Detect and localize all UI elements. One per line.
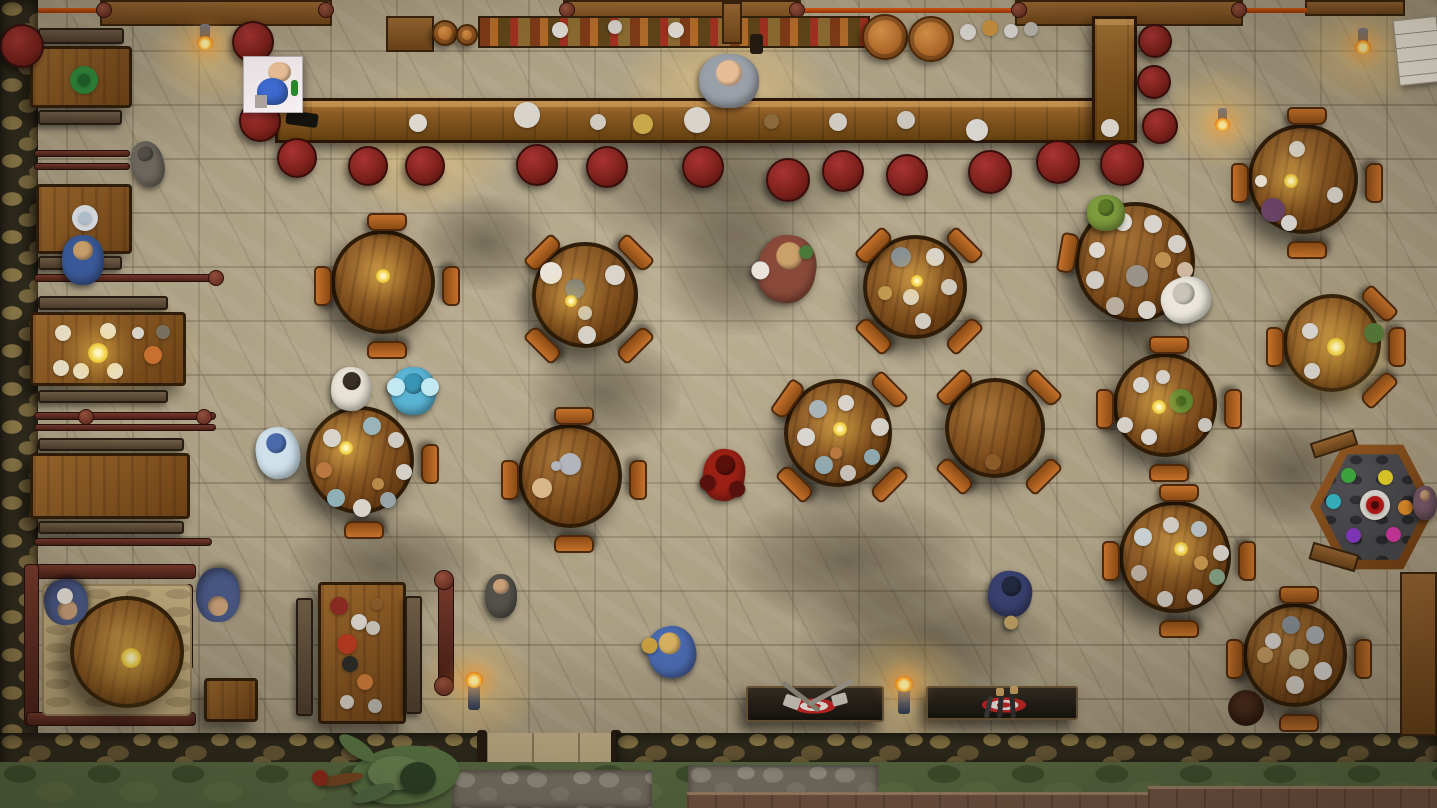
counter-plate	[1101, 119, 1119, 137]
counter-mug	[764, 114, 779, 129]
mug	[878, 286, 892, 300]
chair	[1238, 541, 1256, 581]
plate	[1141, 429, 1157, 445]
plate	[1191, 521, 1207, 537]
chair	[1365, 163, 1383, 203]
wall-lamp	[1218, 104, 1227, 124]
barkeep-token[interactable]	[696, 50, 762, 112]
beer-bottle	[291, 80, 298, 96]
plate	[1134, 528, 1152, 546]
chair	[1159, 484, 1199, 502]
chair	[1102, 541, 1120, 581]
chair	[314, 266, 332, 306]
plate	[1086, 271, 1104, 289]
booth-table-3	[30, 312, 186, 386]
gaming-chip-teal[interactable]	[1326, 494, 1341, 509]
chair	[367, 213, 407, 231]
bar-stool	[1138, 24, 1172, 58]
round-table-c	[306, 406, 414, 514]
corner-bench-rail	[24, 564, 39, 726]
plate	[380, 492, 396, 508]
bread	[100, 323, 116, 339]
serving-table-bench	[296, 598, 313, 716]
candle	[1152, 400, 1166, 414]
token-head	[493, 579, 508, 594]
booth-bench	[38, 296, 168, 310]
chair	[1266, 327, 1284, 367]
plate	[368, 699, 382, 713]
booth-rail	[34, 424, 216, 431]
chair	[1279, 714, 1319, 732]
candle	[1284, 174, 1298, 188]
token-head	[73, 241, 92, 260]
wall-lamp	[200, 20, 210, 42]
torch-flame	[1215, 118, 1230, 131]
green-plate-center	[78, 74, 90, 86]
plate	[1314, 662, 1332, 680]
chair	[1287, 241, 1327, 259]
plate	[871, 418, 889, 436]
bar-stool	[348, 146, 388, 186]
kettle	[1282, 616, 1300, 634]
bar-bowl	[982, 20, 998, 36]
patron-white-shirt-token[interactable]	[327, 362, 375, 416]
bar-stool	[682, 146, 724, 188]
plate	[1327, 187, 1343, 203]
bread	[1155, 252, 1171, 268]
counter-mug	[590, 114, 606, 130]
round-table-l	[1283, 294, 1381, 392]
candle	[565, 295, 577, 307]
wall-pipe	[800, 8, 1018, 13]
roast-dish	[144, 346, 162, 364]
plate	[1304, 363, 1320, 379]
shelf-plate	[608, 20, 622, 34]
plate	[1156, 370, 1170, 384]
plate	[840, 465, 856, 481]
plate	[1168, 235, 1186, 253]
wall-lamp	[1358, 24, 1368, 48]
plate	[363, 417, 381, 435]
plate	[864, 449, 880, 465]
thrown-blade	[1010, 686, 1018, 694]
round-table-d	[518, 424, 622, 528]
wall-torch	[898, 682, 910, 714]
bar-plate	[960, 24, 976, 40]
plate	[1302, 323, 1318, 339]
plate	[915, 313, 931, 329]
token-head	[403, 373, 424, 394]
bar-stool	[516, 144, 558, 186]
token-head	[208, 596, 228, 616]
plate	[323, 429, 341, 447]
booth-bench	[38, 110, 122, 125]
chair	[1159, 620, 1199, 638]
green-dish	[1364, 323, 1384, 343]
chair	[1388, 327, 1406, 367]
chair	[1149, 336, 1189, 354]
chair	[501, 460, 519, 500]
tavern-map	[0, 0, 1437, 808]
plate	[396, 464, 412, 480]
candle	[339, 441, 353, 455]
bar-plate	[1024, 22, 1038, 36]
candle	[833, 422, 847, 436]
plate	[1089, 242, 1105, 258]
kettle	[891, 247, 911, 267]
bar-stool	[0, 24, 44, 68]
green-plate-center	[1176, 396, 1186, 406]
bar-crate	[386, 16, 434, 52]
bar-stool	[822, 150, 864, 192]
serving-table-bench	[405, 596, 422, 714]
mug	[985, 454, 1001, 470]
candle	[911, 275, 923, 287]
chair	[1354, 639, 1372, 679]
top-wall-panel	[100, 0, 332, 26]
booth-bench	[38, 521, 184, 534]
red-eye-pupil	[1371, 501, 1379, 509]
ale-barrel	[862, 14, 908, 60]
gaming-chip-orange[interactable]	[1398, 500, 1413, 515]
wing	[387, 378, 405, 396]
chair	[367, 341, 407, 359]
torch-flame	[465, 672, 483, 688]
chair	[1149, 464, 1189, 482]
bowl	[156, 325, 170, 339]
plate	[340, 695, 354, 709]
plate	[1286, 676, 1304, 694]
troll-head-hair	[400, 762, 436, 794]
booth-rail	[34, 163, 130, 170]
mug	[1198, 418, 1212, 432]
troll-club-head	[312, 770, 328, 786]
wall-knob	[96, 2, 112, 18]
mug	[371, 598, 383, 610]
plate	[1106, 297, 1124, 315]
serving-woman-token[interactable]	[749, 225, 826, 313]
platter	[1126, 265, 1148, 287]
chair	[554, 535, 594, 553]
patron-darkblue-token[interactable]	[982, 564, 1038, 624]
round-table-a	[331, 230, 435, 334]
counter-plate	[409, 114, 427, 132]
ale-barrel	[908, 16, 954, 62]
corner-stander-token[interactable]	[194, 564, 242, 626]
round-table-h	[945, 378, 1045, 478]
glowing-candle	[121, 648, 141, 668]
booth-table-4	[30, 453, 190, 519]
side-stool-table	[204, 678, 258, 722]
rail-knob	[434, 676, 454, 696]
bar-stool	[1100, 142, 1144, 186]
bread	[53, 360, 69, 376]
plate	[1187, 589, 1203, 605]
wall-knob	[1231, 2, 1247, 18]
shelf-plate	[668, 22, 684, 38]
wall-pipe	[1243, 8, 1307, 13]
clay-jug	[432, 20, 458, 46]
chair	[421, 444, 439, 484]
corner-sitter-token[interactable]	[38, 572, 94, 632]
token-head	[716, 60, 742, 86]
plate	[388, 432, 404, 448]
rail-knob	[196, 409, 212, 425]
booth-bench	[38, 438, 184, 451]
plate	[903, 289, 919, 305]
chair	[1287, 107, 1327, 125]
gaming-chip-green[interactable]	[1341, 468, 1356, 483]
plate	[327, 489, 345, 507]
plate	[351, 614, 367, 630]
divider-rail	[438, 576, 454, 686]
candlestick	[1255, 175, 1267, 187]
plate	[797, 428, 815, 446]
mug	[1289, 141, 1305, 157]
plate	[1281, 215, 1297, 231]
booth-rail	[34, 412, 216, 420]
bread	[73, 363, 89, 379]
rail-knob	[78, 409, 94, 425]
bread	[55, 325, 71, 341]
plate	[1138, 301, 1156, 319]
wall-knob	[318, 2, 334, 18]
chair	[1096, 389, 1114, 429]
plate	[1117, 417, 1133, 433]
round-table-g	[784, 379, 892, 487]
round-table-i	[1113, 353, 1217, 457]
standing-patron-token[interactable]	[483, 571, 519, 621]
halfling-patron-token[interactable]	[60, 232, 106, 288]
plate	[1157, 591, 1173, 607]
candle	[376, 269, 390, 283]
booth-bench	[38, 390, 168, 403]
round-table-k	[1248, 124, 1358, 234]
tureen	[1306, 626, 1324, 644]
booth-table-1	[30, 46, 132, 108]
bartender-token[interactable]	[243, 56, 303, 113]
plate	[838, 395, 854, 411]
wall-torch	[468, 678, 480, 710]
rail-knob	[434, 570, 454, 590]
booth-bench	[38, 28, 124, 44]
floor-cauldron	[1228, 690, 1264, 726]
bar-stool	[1142, 108, 1178, 144]
gravy-boat	[559, 453, 581, 475]
counter-jug	[966, 119, 988, 141]
bar-plate	[1004, 24, 1018, 38]
chair	[629, 460, 647, 500]
plate	[1133, 377, 1149, 393]
plate	[1213, 545, 1229, 561]
plate	[1163, 517, 1179, 533]
jug	[316, 462, 332, 478]
bar-stool	[1036, 140, 1080, 184]
plate	[1209, 569, 1225, 585]
knife-throwing-table	[926, 686, 1078, 720]
clay-jug	[456, 24, 478, 46]
pan	[342, 656, 358, 672]
thrown-blade	[996, 688, 1004, 696]
jug	[1131, 565, 1147, 581]
chair	[1231, 163, 1249, 203]
round-table-e	[863, 235, 967, 339]
plate	[1144, 215, 1162, 233]
platter	[1289, 649, 1309, 669]
bar-stool	[277, 138, 317, 178]
booth-rail	[34, 538, 212, 546]
torch-flame	[197, 36, 213, 50]
chair	[344, 521, 384, 539]
plate	[941, 279, 957, 295]
chair	[1224, 389, 1242, 429]
axe-throwing-table	[746, 686, 884, 722]
bar-stool	[586, 146, 628, 188]
plate	[366, 621, 380, 635]
bar-stool	[405, 146, 445, 186]
wing	[421, 378, 439, 396]
goblin-token[interactable]	[1085, 193, 1127, 233]
mug	[578, 306, 592, 320]
top-wall-panel	[1305, 0, 1405, 16]
gaming-chip-purple[interactable]	[1346, 528, 1361, 543]
target-rings	[964, 691, 1044, 719]
counter-bowl	[633, 114, 653, 134]
plate-food	[79, 212, 91, 224]
napkin	[540, 262, 562, 284]
bread	[107, 363, 123, 379]
gaming-chip-magenta[interactable]	[1386, 527, 1401, 542]
counter-plate	[897, 111, 915, 129]
torch-flame	[1355, 40, 1371, 54]
chair	[442, 266, 460, 306]
bar-stool	[766, 158, 810, 202]
round-table-b	[532, 242, 638, 348]
jug	[1257, 647, 1273, 663]
torch-flame	[895, 676, 913, 692]
serving-table	[318, 582, 406, 724]
plate	[809, 400, 827, 418]
wall-knob	[1011, 2, 1027, 18]
mug	[830, 447, 842, 459]
plate	[578, 326, 596, 344]
plate	[532, 478, 552, 498]
rail-knob	[208, 270, 224, 286]
bar-stool	[1137, 65, 1171, 99]
bottle-stand	[722, 2, 742, 44]
booth-rail	[34, 150, 130, 157]
gaming-chip-yellow[interactable]	[1378, 470, 1393, 485]
plate	[605, 265, 625, 285]
bartender-pants	[255, 95, 267, 109]
candle	[1174, 542, 1188, 556]
glowing-platter	[88, 343, 108, 363]
blue-white-creature-token[interactable]	[249, 420, 306, 485]
plate	[815, 456, 833, 474]
bar-stool	[968, 150, 1012, 194]
chair	[554, 407, 594, 425]
cobble-path	[452, 770, 652, 808]
bar-stool	[886, 154, 928, 196]
bowl	[357, 674, 373, 690]
plate	[353, 499, 371, 517]
round-table-m	[1243, 603, 1347, 707]
round-table-j	[1119, 501, 1231, 613]
side-room-floor	[1400, 572, 1437, 736]
plate	[926, 248, 944, 266]
plate	[132, 327, 144, 339]
gambler-token[interactable]	[1412, 484, 1437, 522]
counter-plate	[829, 113, 847, 131]
chair	[1226, 639, 1244, 679]
boardwalk	[1148, 786, 1437, 808]
corner-bench-rail	[24, 564, 196, 579]
boardwalk	[687, 792, 1149, 808]
notice-scroll[interactable]	[1393, 16, 1437, 86]
red-plate	[330, 597, 348, 615]
counter-jug	[514, 102, 540, 128]
fairy-dragon-token[interactable]	[388, 364, 438, 418]
shelf-plate	[552, 22, 568, 38]
chair	[1279, 586, 1319, 604]
red-demon-token[interactable]	[697, 443, 751, 507]
glowing-candle	[1327, 338, 1345, 356]
gravy-spout	[551, 461, 561, 471]
bowl	[1194, 556, 1208, 570]
pie	[337, 634, 357, 654]
mug	[372, 478, 384, 490]
